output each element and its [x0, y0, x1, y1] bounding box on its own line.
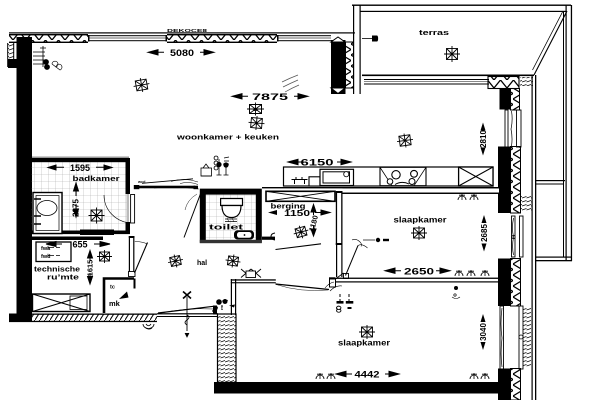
svg-text:woonkamer + keuken: woonkamer + keuken [176, 133, 280, 142]
svg-text:2810: 2810 [479, 130, 488, 148]
svg-text:DEKOCE8: DEKOCE8 [167, 28, 208, 33]
svg-text:wcd: wcd [137, 180, 146, 184]
svg-text:fwa: fwa [41, 246, 51, 252]
svg-text:slaapkamer: slaapkamer [338, 339, 390, 348]
svg-text:2685: 2685 [480, 224, 489, 242]
svg-text:tc: tc [110, 285, 115, 291]
svg-text:mk: mk [109, 299, 121, 308]
svg-text:1150: 1150 [284, 208, 310, 218]
svg-text:60: 60 [253, 107, 258, 112]
svg-text:7875: 7875 [252, 92, 288, 102]
svg-text:technische: technische [34, 267, 80, 274]
svg-text:6150: 6150 [301, 158, 334, 168]
svg-text:655: 655 [72, 240, 87, 250]
svg-text:2650: 2650 [404, 267, 434, 277]
svg-text:5080: 5080 [170, 48, 194, 58]
svg-text:hal: hal [197, 260, 207, 267]
svg-text:badkamer: badkamer [73, 174, 120, 183]
svg-text:rm: rm [219, 304, 224, 310]
svg-text:1595: 1595 [70, 163, 90, 173]
svg-text:3040: 3040 [479, 323, 488, 341]
svg-text:4442: 4442 [355, 370, 380, 380]
svg-text:fwd: fwd [41, 254, 50, 260]
svg-text:ru’mte: ru’mte [47, 275, 79, 282]
svg-text:terras: terras [419, 28, 449, 37]
svg-text:slaapkamer: slaapkamer [394, 216, 447, 225]
